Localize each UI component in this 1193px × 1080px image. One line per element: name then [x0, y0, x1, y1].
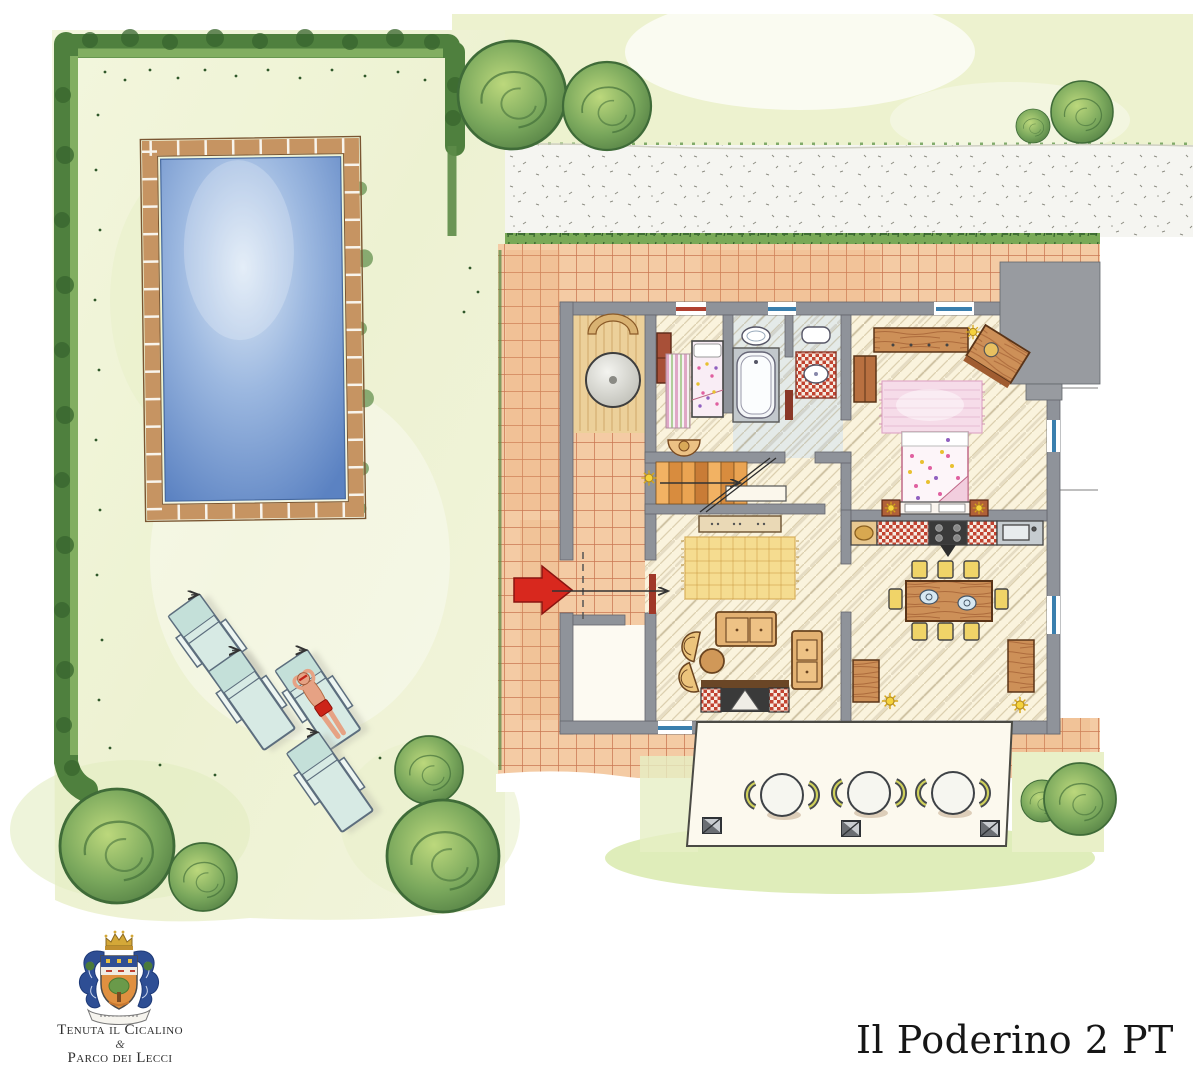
entry-door-leaf — [649, 574, 656, 614]
sofa-side — [792, 631, 822, 689]
console-table — [699, 516, 781, 532]
sofa-main — [716, 612, 776, 646]
pergola-terrace — [687, 722, 1012, 846]
double-bed — [899, 432, 971, 514]
tree-garden-large — [60, 789, 174, 903]
tree-mid-small — [395, 736, 463, 804]
pergola-post — [981, 821, 999, 836]
bush-topright-small — [1016, 109, 1050, 143]
vestibule-floor — [573, 433, 645, 615]
bathtub — [733, 348, 779, 422]
bathroom-divider — [785, 390, 793, 420]
cabinet-left — [853, 660, 879, 702]
tree-mid-large — [387, 800, 499, 912]
pergola-post — [703, 818, 721, 833]
rug-master — [879, 381, 985, 433]
floor-plan-drawing — [0, 0, 1193, 1080]
rug-living — [681, 537, 799, 599]
plan-title: Il Poderino 2 PT — [856, 1018, 1190, 1062]
storage-room-floor — [573, 625, 645, 721]
gravel-path — [452, 144, 1193, 241]
estate-logo-text: Tenuta il Cicalino & Parco dei Lecci — [22, 1022, 218, 1067]
sink — [742, 327, 770, 345]
bush-topleft-large — [458, 41, 566, 149]
logo-line-park: Parco dei Lecci — [22, 1050, 218, 1067]
bush-topright-large — [1051, 81, 1113, 143]
stair-landing — [726, 486, 786, 501]
single-bed — [692, 341, 723, 417]
crest-tree — [109, 978, 129, 994]
toilet — [802, 327, 830, 343]
logo-ampersand: & — [22, 1039, 218, 1050]
rug-single — [666, 354, 690, 428]
bush-topleft-small — [563, 62, 651, 150]
tree-garden-small — [169, 843, 237, 911]
site-plan-page: Tenuta il Cicalino & Parco dei Lecci Il … — [0, 0, 1193, 1080]
bush-terrace-large — [1044, 763, 1116, 835]
dresser — [874, 328, 968, 352]
fireplace — [701, 680, 789, 712]
cabinet-right — [1008, 640, 1034, 692]
washbasin — [796, 352, 836, 398]
pergola-post — [842, 821, 860, 836]
house — [514, 262, 1100, 734]
coffee-table — [700, 649, 724, 673]
swimming-pool — [140, 136, 376, 521]
